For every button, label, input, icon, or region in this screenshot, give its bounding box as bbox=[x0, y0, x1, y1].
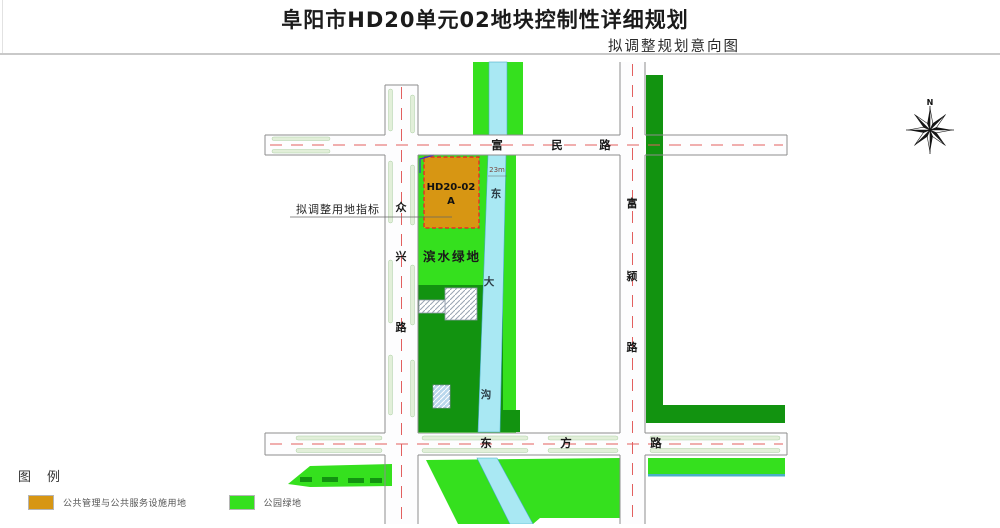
road-label-char: 富 bbox=[627, 196, 638, 210]
road-borders bbox=[265, 62, 787, 524]
waterway-label-char: 大 bbox=[484, 275, 495, 288]
road-label-char: 富 bbox=[491, 138, 503, 152]
planning-map: HD20-02 A bbox=[0, 55, 1000, 524]
building-hatch-small-pattern bbox=[419, 300, 445, 313]
road-label-char: 路 bbox=[650, 436, 662, 450]
waterway-width-label: 23m bbox=[489, 166, 505, 174]
dark-green-strip-fuying bbox=[646, 75, 785, 423]
compass-north-label: N bbox=[927, 98, 934, 107]
building-hatch-large-pattern bbox=[445, 288, 477, 320]
border-tick bbox=[2, 0, 3, 53]
road-label-char: 路 bbox=[627, 340, 639, 354]
legend-label-public-facilities: 公共管理与公共服务设施用地 bbox=[63, 496, 187, 509]
annotation-label: 拟调整用地指标 bbox=[296, 202, 380, 216]
parcel-code-label: HD20-02 bbox=[427, 182, 476, 193]
water-bank-east-north bbox=[507, 62, 523, 135]
dark-green-patch-east bbox=[503, 410, 520, 432]
page-title: 阜阳市HD20单元02地块控制性详细规划 bbox=[0, 4, 970, 34]
road-label-char: 民 bbox=[551, 138, 563, 152]
road-label-char: 东 bbox=[480, 436, 492, 450]
compass-rose: N bbox=[906, 98, 954, 154]
legend-swatch-park-green bbox=[229, 495, 255, 510]
legend-items: 公共管理与公共服务设施用地 公园绿地 bbox=[28, 495, 344, 510]
legend-swatch-public-facilities bbox=[28, 495, 54, 510]
road-label-char: 颍 bbox=[626, 270, 638, 283]
water-channel-north bbox=[489, 62, 507, 135]
legend-label-park-green: 公园绿地 bbox=[264, 496, 302, 509]
road-label-char: 路 bbox=[396, 320, 408, 334]
building-hatch-blue-pattern bbox=[433, 385, 450, 408]
waterway-label-char: 东 bbox=[491, 187, 502, 200]
road-label-char: 方 bbox=[560, 436, 572, 450]
road-label-char: 众 bbox=[396, 200, 408, 214]
waterfront-green-label: 滨水绿地 bbox=[423, 249, 481, 264]
legend-title: 图例 bbox=[18, 466, 344, 485]
water-bank-west-north bbox=[473, 62, 489, 135]
green-bar-water-edge bbox=[648, 474, 785, 477]
planning-map-svg: HD20-02 A bbox=[0, 55, 1000, 524]
road-label-char: 兴 bbox=[396, 249, 407, 263]
green-bar-southeast bbox=[648, 458, 785, 474]
waterway-label-char: 沟 bbox=[481, 388, 492, 401]
legend: 图例 公共管理与公共服务设施用地 公园绿地 bbox=[18, 466, 344, 510]
road-label-char: 路 bbox=[599, 138, 611, 152]
parcel-suffix-label: A bbox=[447, 196, 455, 207]
waterway-north-corridor bbox=[473, 62, 523, 135]
